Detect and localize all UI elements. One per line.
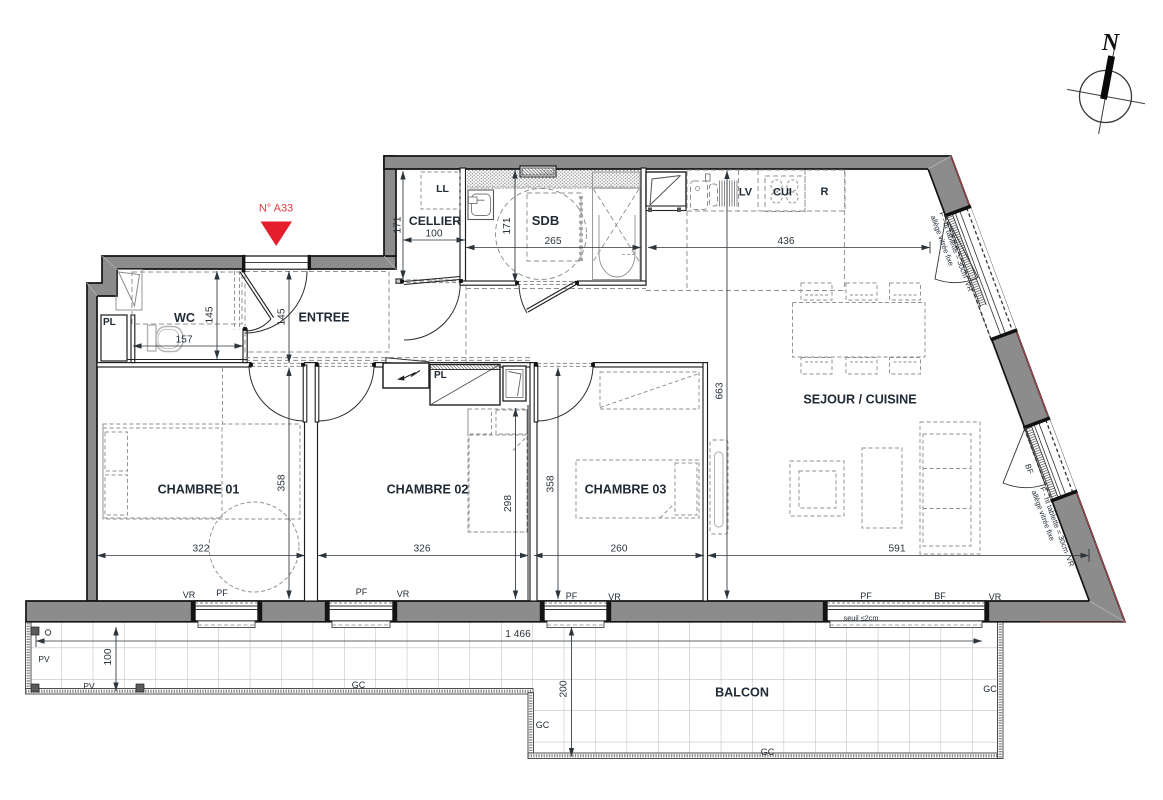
svg-text:N: N	[1101, 30, 1121, 56]
svg-text:CHAMBRE 01: CHAMBRE 01	[158, 483, 240, 497]
svg-text:298: 298	[503, 495, 514, 512]
svg-text:LV: LV	[739, 187, 753, 199]
svg-text:663: 663	[715, 382, 726, 399]
svg-text:BALCON: BALCON	[715, 686, 769, 700]
svg-text:100: 100	[426, 229, 443, 240]
svg-text:VR: VR	[608, 592, 621, 602]
svg-text:LL: LL	[436, 183, 449, 195]
svg-text:CHAMBRE 03: CHAMBRE 03	[585, 483, 667, 497]
svg-text:358: 358	[277, 474, 288, 491]
svg-text:265: 265	[545, 236, 562, 247]
svg-text:GC: GC	[536, 720, 550, 730]
svg-text:VR: VR	[989, 592, 1002, 602]
svg-text:GC: GC	[761, 747, 775, 757]
svg-text:ENTREE: ENTREE	[298, 311, 349, 325]
svg-text:358: 358	[546, 475, 557, 492]
svg-text:PF: PF	[860, 591, 872, 601]
svg-text:CELLIER: CELLIER	[409, 214, 461, 228]
svg-text:seuil ≤2cm: seuil ≤2cm	[844, 614, 879, 623]
svg-text:100: 100	[103, 648, 114, 665]
svg-text:PF: PF	[216, 588, 228, 598]
svg-text:BF: BF	[934, 591, 946, 601]
svg-text:SEJOUR / CUISINE: SEJOUR / CUISINE	[803, 393, 916, 407]
svg-text:PF: PF	[356, 587, 368, 597]
svg-text:VR: VR	[183, 590, 196, 600]
svg-text:200: 200	[559, 680, 570, 697]
svg-text:SDB: SDB	[532, 213, 559, 228]
svg-text:PL: PL	[434, 370, 447, 381]
svg-text:171: 171	[393, 216, 404, 233]
svg-text:1 466: 1 466	[505, 629, 531, 640]
svg-text:PV: PV	[38, 654, 50, 664]
svg-text:PL: PL	[103, 317, 116, 328]
svg-text:591: 591	[889, 544, 906, 555]
svg-text:R: R	[821, 186, 829, 198]
svg-text:PV: PV	[83, 681, 95, 691]
svg-text:157: 157	[176, 335, 193, 346]
svg-text:GC: GC	[352, 680, 366, 690]
svg-text:PF: PF	[566, 591, 578, 601]
svg-text:WC: WC	[174, 311, 195, 325]
svg-text:N° A33: N° A33	[259, 203, 293, 215]
svg-text:CUI: CUI	[773, 187, 792, 199]
svg-text:171: 171	[502, 217, 513, 234]
svg-text:322: 322	[193, 544, 210, 555]
svg-text:326: 326	[414, 544, 431, 555]
svg-text:145: 145	[205, 306, 216, 323]
svg-text:VR: VR	[397, 589, 410, 599]
svg-text:436: 436	[778, 236, 795, 247]
svg-text:260: 260	[611, 544, 628, 555]
svg-text:145: 145	[277, 308, 288, 325]
svg-text:GC: GC	[983, 684, 997, 694]
svg-text:CHAMBRE 02: CHAMBRE 02	[387, 483, 469, 497]
